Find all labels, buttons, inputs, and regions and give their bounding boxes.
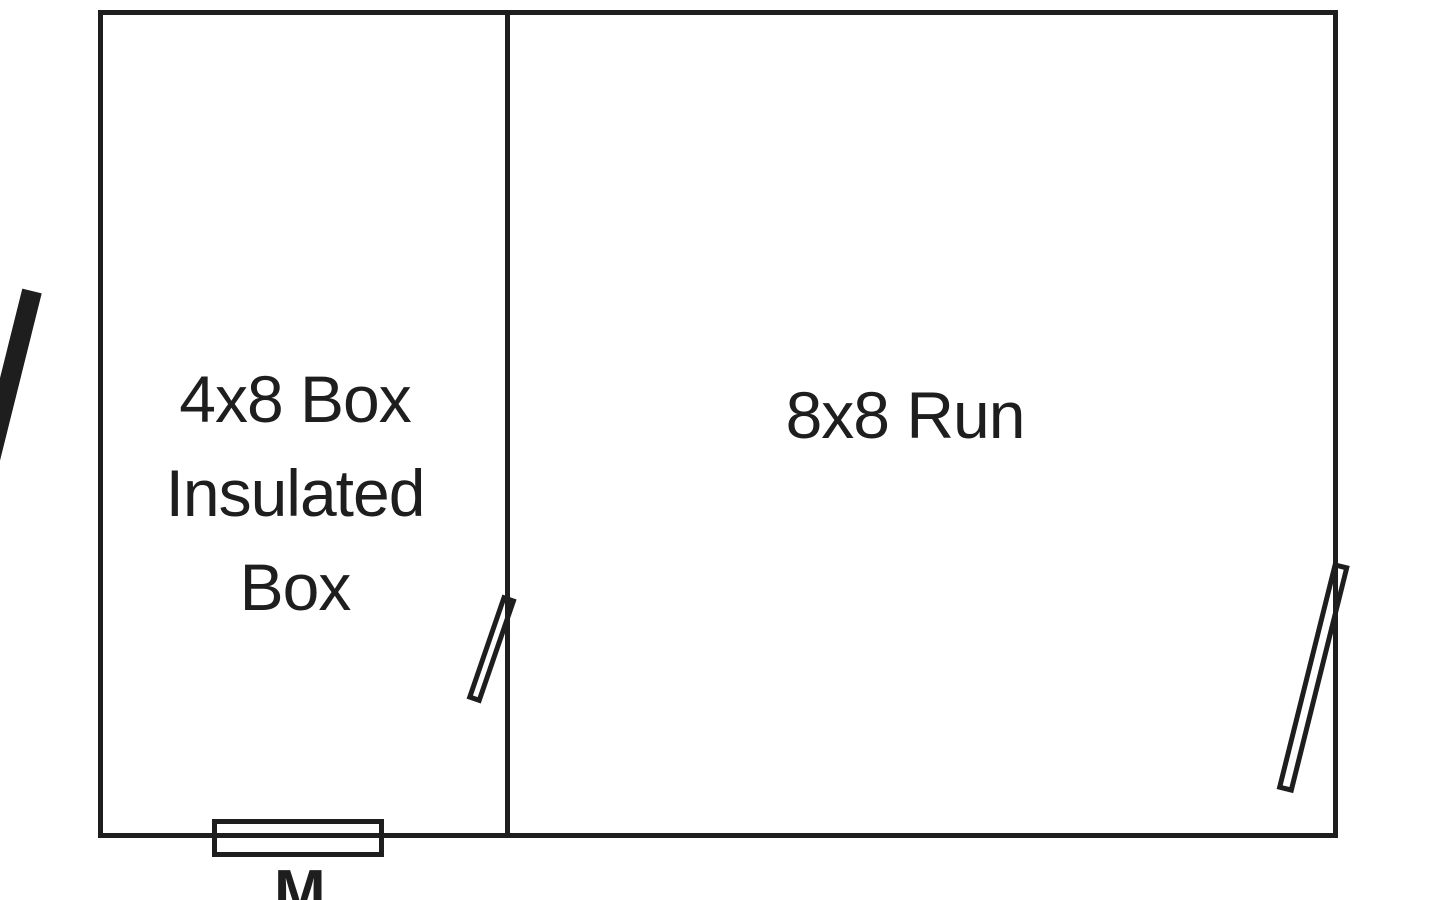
floor-plan-diagram: 4x8 Box Insulated Box 8x8 Run M xyxy=(0,0,1440,900)
wall-window-icon xyxy=(212,819,384,857)
left-room-label-line-2: Insulated xyxy=(100,446,490,540)
solid-open-door-icon xyxy=(0,289,42,558)
left-room-label-line-3: Box xyxy=(100,540,490,634)
right-room-label: 8x8 Run xyxy=(610,368,1200,462)
left-room-label-line-1: 4x8 Box xyxy=(100,352,490,446)
partial-letter: M xyxy=(274,856,326,900)
divider-wall xyxy=(505,10,510,838)
left-room-label: 4x8 Box Insulated Box xyxy=(100,352,490,634)
